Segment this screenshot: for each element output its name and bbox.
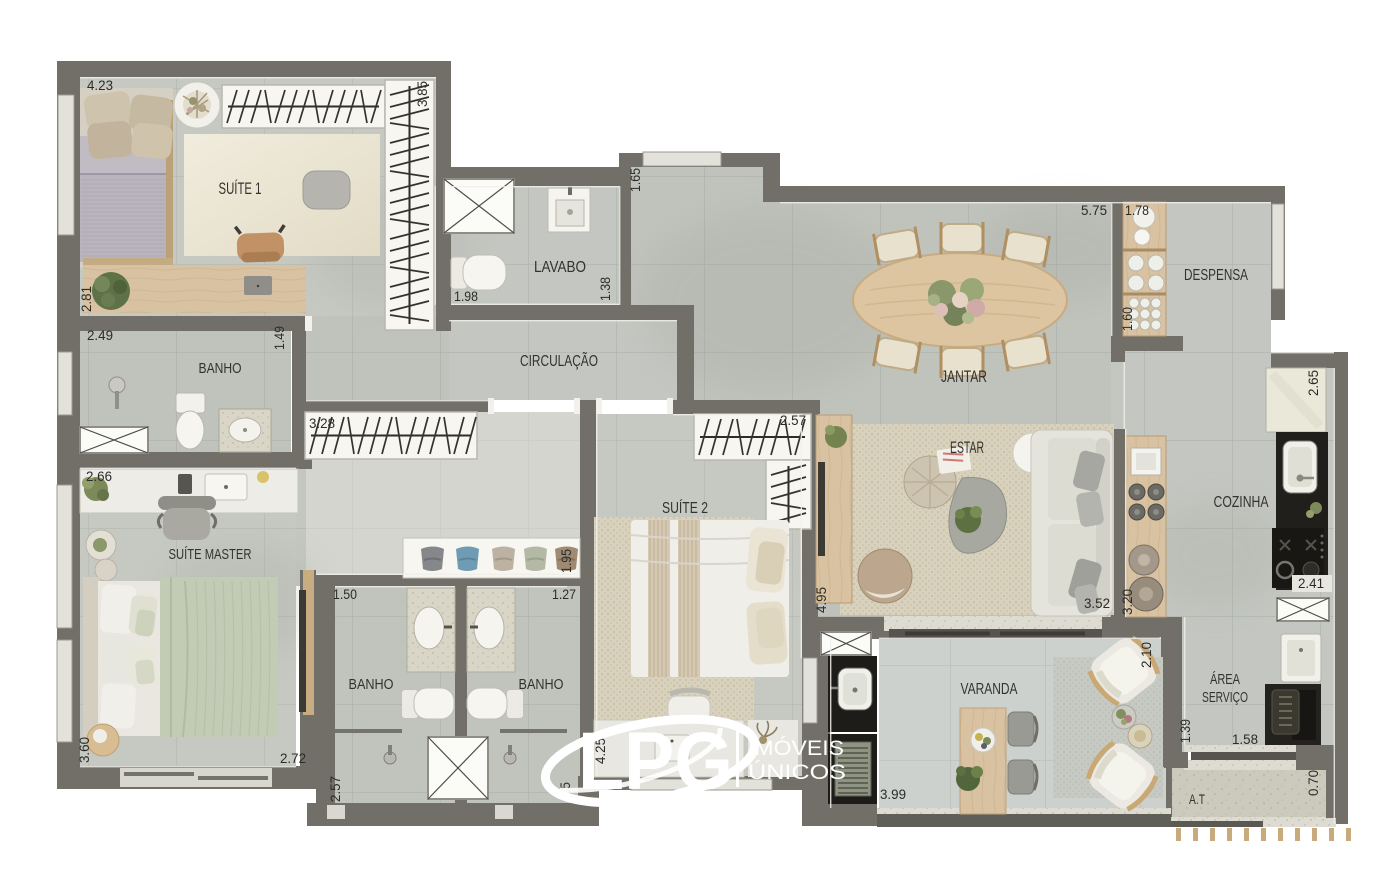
svg-text:3.28: 3.28 bbox=[309, 416, 335, 431]
svg-text:ESTAR: ESTAR bbox=[950, 438, 984, 457]
svg-text:COZINHA: COZINHA bbox=[1214, 494, 1269, 511]
svg-text:SUÍTE MASTER: SUÍTE MASTER bbox=[169, 546, 252, 563]
svg-text:LPG: LPG bbox=[578, 716, 733, 807]
svg-text:3.52: 3.52 bbox=[1084, 596, 1110, 611]
svg-text:2.66: 2.66 bbox=[86, 469, 112, 484]
svg-text:CIRCULAÇÃO: CIRCULAÇÃO bbox=[520, 350, 598, 370]
svg-text:1.38: 1.38 bbox=[598, 277, 613, 301]
svg-text:2.49: 2.49 bbox=[87, 328, 113, 343]
svg-text:BANHO: BANHO bbox=[199, 360, 242, 377]
svg-text:1.95: 1.95 bbox=[559, 549, 574, 573]
svg-text:3.85: 3.85 bbox=[415, 81, 430, 107]
svg-text:0.70: 0.70 bbox=[1306, 770, 1321, 796]
svg-text:2.72: 2.72 bbox=[280, 751, 306, 766]
svg-text:3.20: 3.20 bbox=[1120, 589, 1135, 615]
svg-text:2.41: 2.41 bbox=[1298, 576, 1324, 591]
svg-text:1.98: 1.98 bbox=[454, 289, 478, 304]
svg-text:1.78: 1.78 bbox=[1125, 203, 1149, 218]
svg-text:LAVABO: LAVABO bbox=[534, 259, 586, 276]
svg-text:VARANDA: VARANDA bbox=[961, 681, 1018, 698]
svg-text:1.50: 1.50 bbox=[333, 587, 357, 602]
svg-text:SUÍTE 1: SUÍTE 1 bbox=[219, 179, 262, 198]
svg-text:2.57: 2.57 bbox=[328, 776, 343, 802]
svg-text:IMÓVEIS: IMÓVEIS bbox=[748, 737, 844, 760]
svg-text:1.60: 1.60 bbox=[1120, 307, 1135, 331]
svg-text:DESPENSA: DESPENSA bbox=[1184, 267, 1248, 284]
svg-text:JANTAR: JANTAR bbox=[941, 367, 987, 386]
svg-text:2.81: 2.81 bbox=[79, 286, 94, 312]
svg-text:2.65: 2.65 bbox=[1306, 370, 1321, 396]
svg-text:2.57: 2.57 bbox=[780, 413, 806, 428]
svg-text:3.60: 3.60 bbox=[77, 737, 92, 763]
svg-text:4.95: 4.95 bbox=[814, 587, 829, 613]
svg-text:5.75: 5.75 bbox=[1081, 203, 1107, 218]
svg-text:SUÍTE 2: SUÍTE 2 bbox=[662, 498, 708, 517]
svg-text:1.58: 1.58 bbox=[1232, 732, 1258, 747]
svg-text:SERVIÇO: SERVIÇO bbox=[1202, 689, 1248, 706]
svg-text:1.39: 1.39 bbox=[1178, 719, 1193, 743]
svg-text:ÚNICOS: ÚNICOS bbox=[748, 761, 846, 784]
svg-text:1.27: 1.27 bbox=[552, 587, 576, 602]
svg-text:BANHO: BANHO bbox=[519, 676, 564, 693]
svg-text:A.T: A.T bbox=[1189, 791, 1205, 807]
svg-text:1.65: 1.65 bbox=[628, 168, 643, 192]
svg-text:1.49: 1.49 bbox=[272, 326, 287, 350]
svg-text:ÁREA: ÁREA bbox=[1210, 671, 1240, 688]
svg-text:4.23: 4.23 bbox=[87, 78, 113, 93]
svg-text:3.99: 3.99 bbox=[880, 787, 906, 802]
svg-text:BANHO: BANHO bbox=[349, 676, 394, 693]
svg-text:2.10: 2.10 bbox=[1139, 642, 1154, 668]
